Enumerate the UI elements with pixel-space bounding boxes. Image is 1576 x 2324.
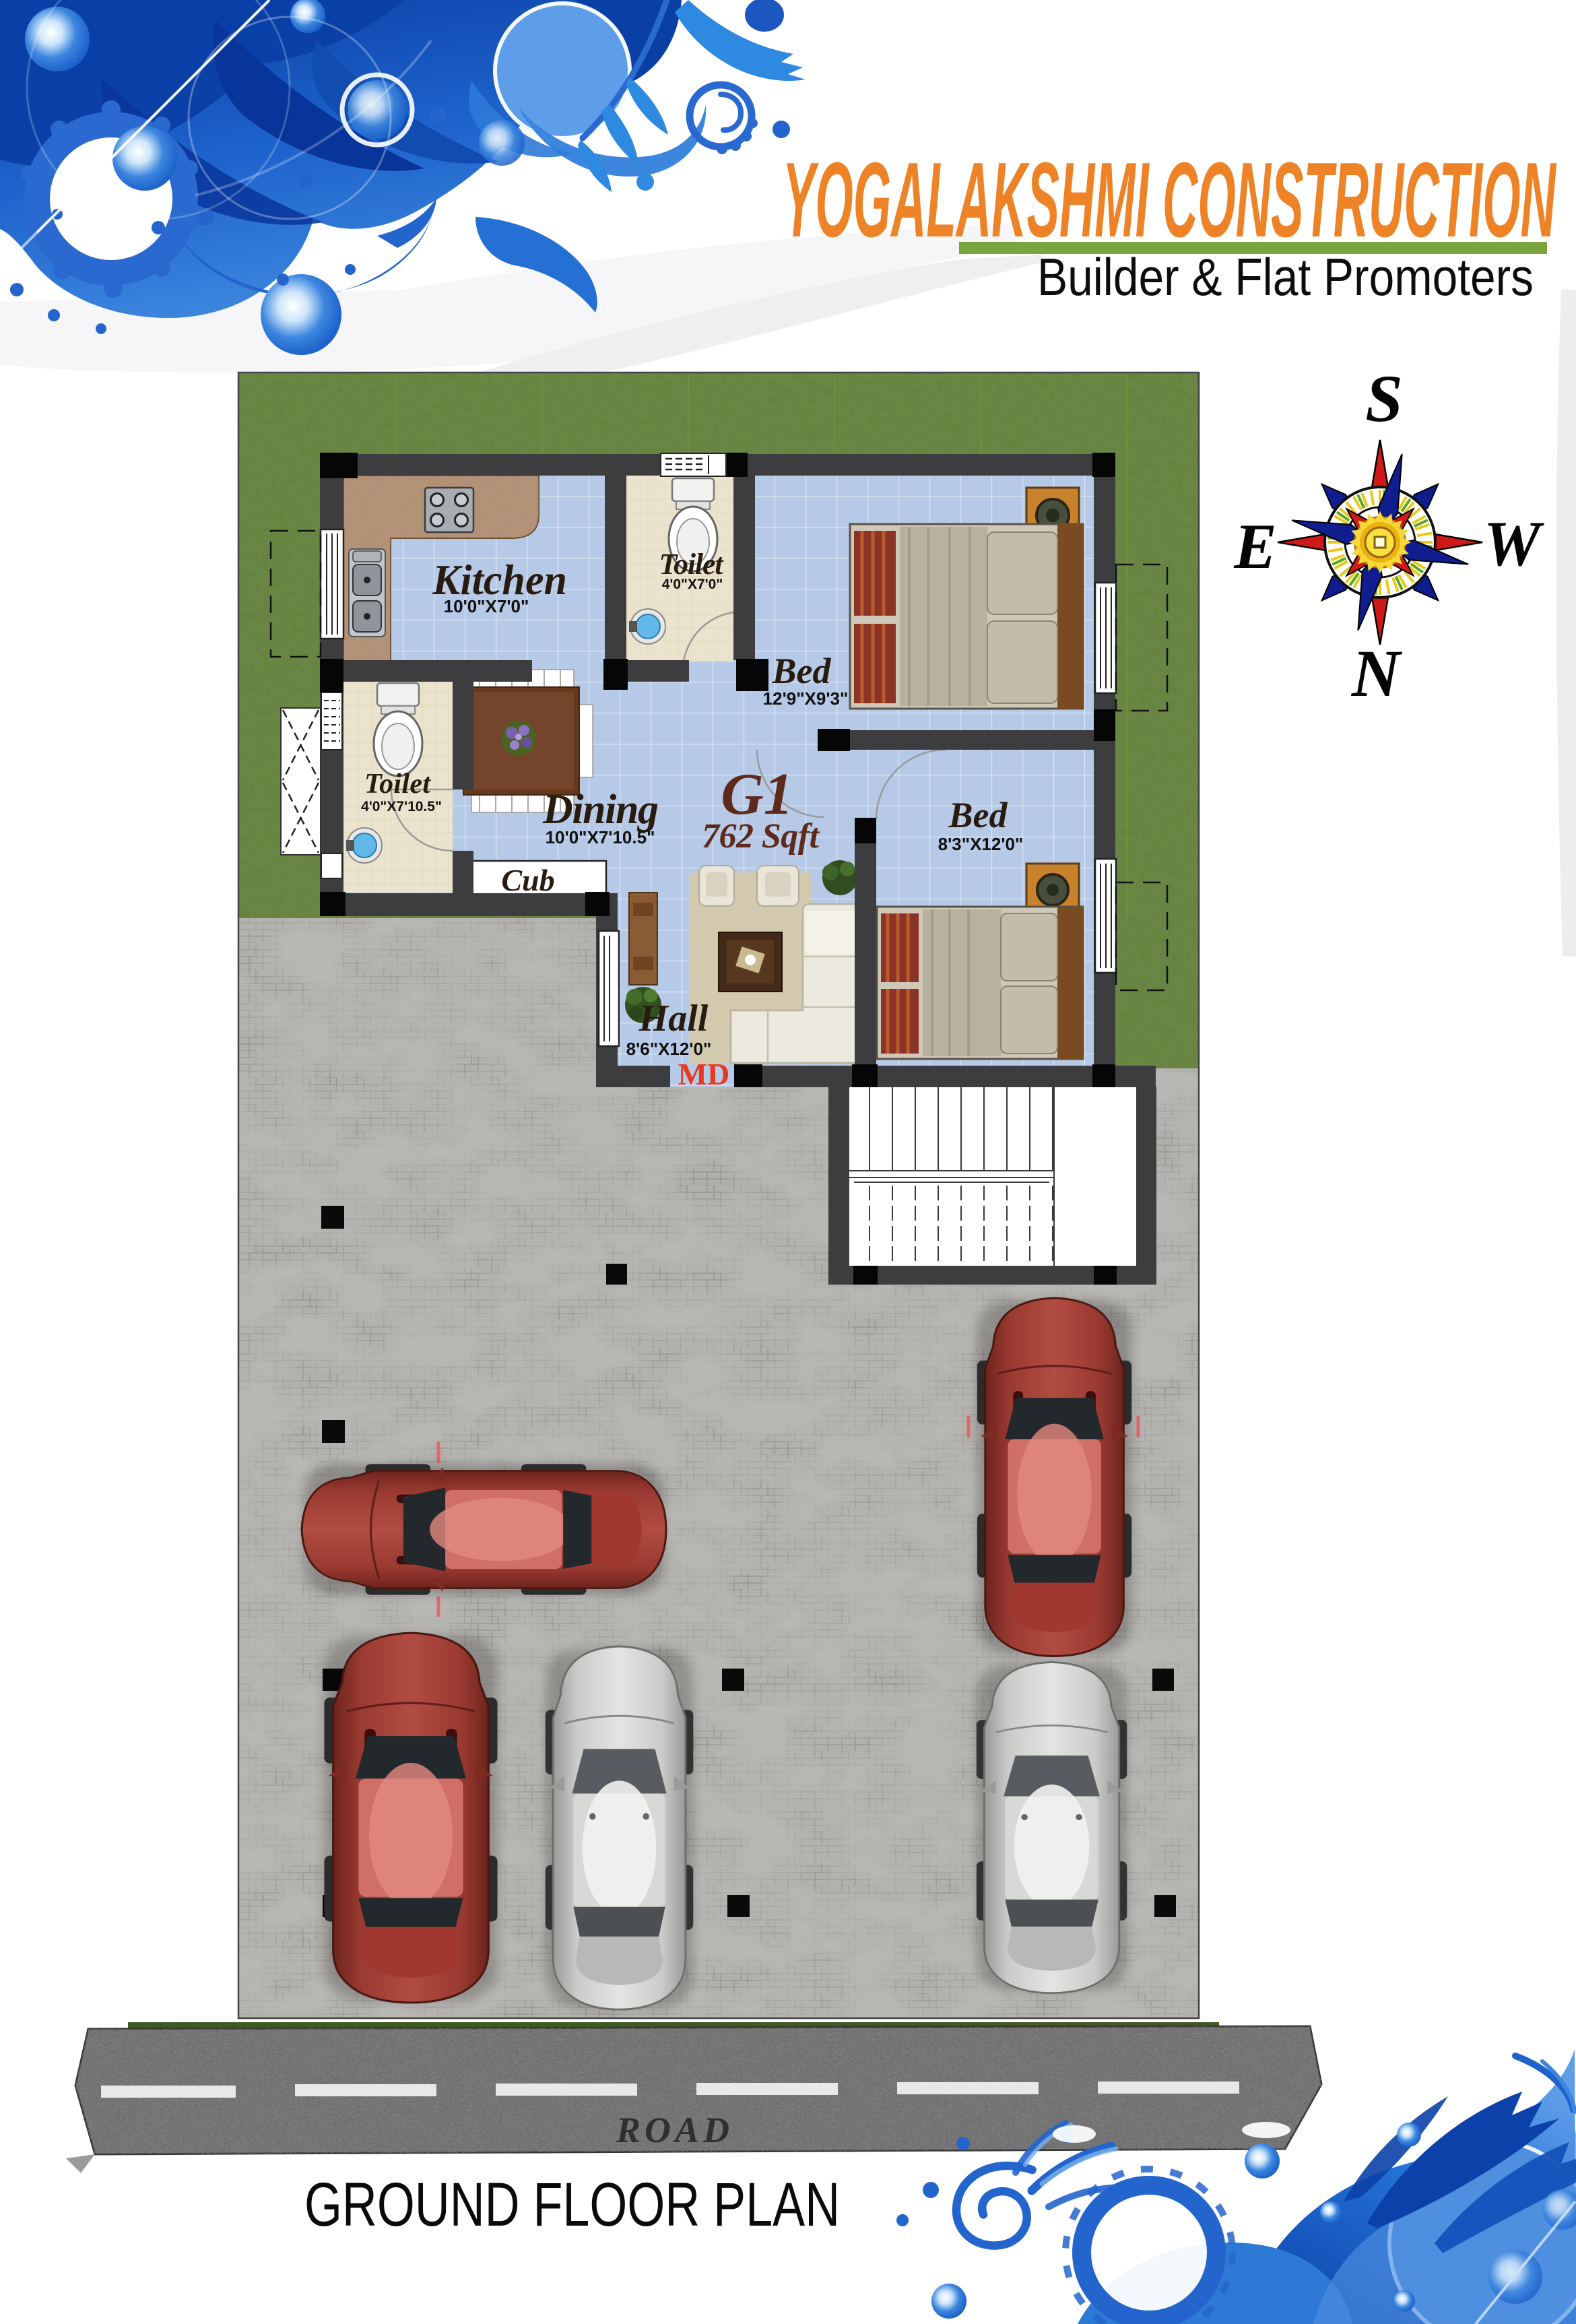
svg-text:YOGALAKSHMI CONSTRUCTION: YOGALAKSHMI CONSTRUCTION: [783, 141, 1556, 259]
svg-text:MD: MD: [678, 1057, 730, 1091]
svg-text:10'0"X7'0": 10'0"X7'0": [444, 596, 529, 616]
svg-text:10'0"X7'10.5": 10'0"X7'10.5": [546, 827, 655, 847]
svg-text:Hall: Hall: [638, 998, 709, 1039]
svg-text:Toilet: Toilet: [659, 548, 725, 581]
svg-text:Toilet: Toilet: [364, 769, 431, 800]
svg-text:12'9"X9'3": 12'9"X9'3": [763, 688, 849, 709]
svg-text:Cub: Cub: [501, 863, 554, 897]
svg-text:S: S: [1365, 361, 1403, 436]
svg-text:W: W: [1484, 508, 1545, 579]
svg-text:8'6"X12'0": 8'6"X12'0": [626, 1039, 712, 1059]
svg-text:Builder & Flat Promoters: Builder & Flat Promoters: [1037, 247, 1534, 306]
svg-text:ROAD: ROAD: [616, 2110, 733, 2150]
svg-text:N: N: [1351, 636, 1403, 711]
svg-text:4'0"X7'10.5": 4'0"X7'10.5": [361, 799, 442, 814]
svg-text:Bed: Bed: [772, 651, 832, 691]
svg-text:Dining: Dining: [542, 787, 659, 833]
svg-text:4'0"X7'0": 4'0"X7'0": [662, 577, 723, 592]
svg-text:762 Sqft: 762 Sqft: [702, 817, 820, 856]
svg-text:E: E: [1233, 511, 1276, 582]
svg-text:Bed: Bed: [948, 795, 1008, 835]
svg-text:8'3"X12'0": 8'3"X12'0": [938, 834, 1024, 854]
svg-text:GROUND FLOOR PLAN: GROUND FLOOR PLAN: [304, 2170, 840, 2239]
